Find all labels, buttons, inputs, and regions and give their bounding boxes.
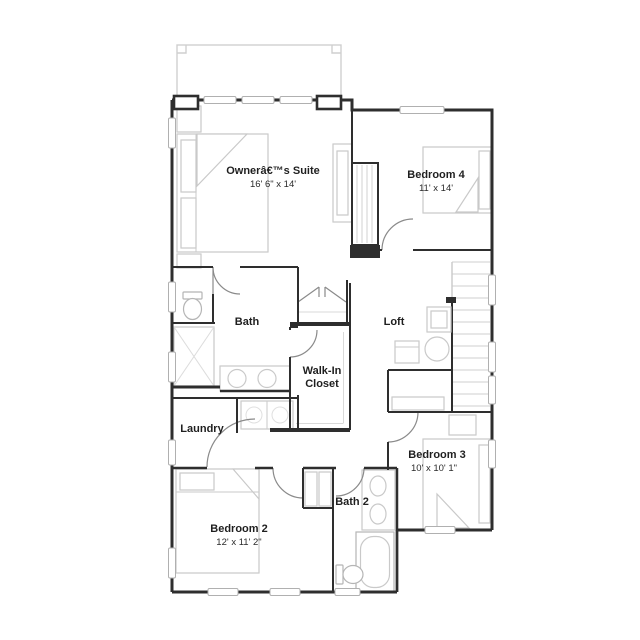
staircase [446, 262, 490, 412]
dresser [333, 144, 352, 222]
bedroom3-door-swing [388, 412, 418, 442]
laundry-appliances [241, 401, 293, 429]
floor-plan-page: Ownerâ€™s Suite 16' 6" x 14' Bedroom 4 1… [0, 0, 640, 640]
toilet-icon [336, 565, 363, 584]
linen-closet-2-doors [305, 472, 331, 506]
bath2-label: Bath 2 [335, 496, 369, 508]
owners-suite-dims: 16' 6" x 14' [250, 179, 296, 190]
bath-fixtures [174, 292, 290, 391]
walk-in-closet-door-swing [290, 330, 317, 357]
bedroom2-label: Bedroom 2 [210, 523, 267, 535]
armchair [395, 341, 419, 363]
owners-suite-label: Ownerâ€™s Suite [226, 165, 320, 177]
wc-door-swing [213, 267, 240, 294]
round-table [425, 337, 449, 361]
door-swings [207, 219, 418, 498]
bathtub [356, 532, 394, 592]
side-table [427, 307, 451, 332]
linen-closet-bifold [298, 287, 346, 302]
owners-bed [177, 134, 268, 252]
owners-closet-hanging [357, 165, 372, 243]
bath-label: Bath [235, 316, 260, 328]
bath2-fixtures [336, 470, 395, 592]
bedroom2-door-swing [273, 468, 303, 498]
floor-plan-canvas: Ownerâ€™s Suite 16' 6" x 14' Bedroom 4 1… [0, 0, 640, 640]
bedroom3-label: Bedroom 3 [408, 449, 465, 461]
nightstand [177, 254, 201, 268]
bedroom2-furniture [176, 469, 259, 573]
roof-outline [177, 45, 341, 99]
bedroom2-bed [176, 469, 259, 573]
bedroom2-dims: 12' x 11' 2" [216, 537, 261, 548]
bedroom4-dims: 11' x 14' [419, 183, 453, 194]
double-vanity [220, 366, 290, 391]
bath2-door-swing [336, 468, 364, 496]
bedroom3-dims: 10' x 10' 1" [411, 463, 457, 474]
laundry-label: Laundry [180, 423, 224, 435]
walk-in-closet-label-line1: Walk-In [303, 365, 342, 377]
loft-label: Loft [384, 316, 405, 328]
closet-shelf [392, 397, 444, 410]
stair-rail-post [446, 297, 456, 303]
bedroom4-door-swing [382, 219, 413, 250]
nightstand [449, 415, 476, 435]
toilet-icon [183, 292, 202, 320]
bedroom4-label: Bedroom 4 [407, 169, 465, 181]
walk-in-closet-label-line2: Closet [305, 378, 339, 390]
owners-closet [352, 163, 378, 245]
shower [174, 327, 214, 386]
